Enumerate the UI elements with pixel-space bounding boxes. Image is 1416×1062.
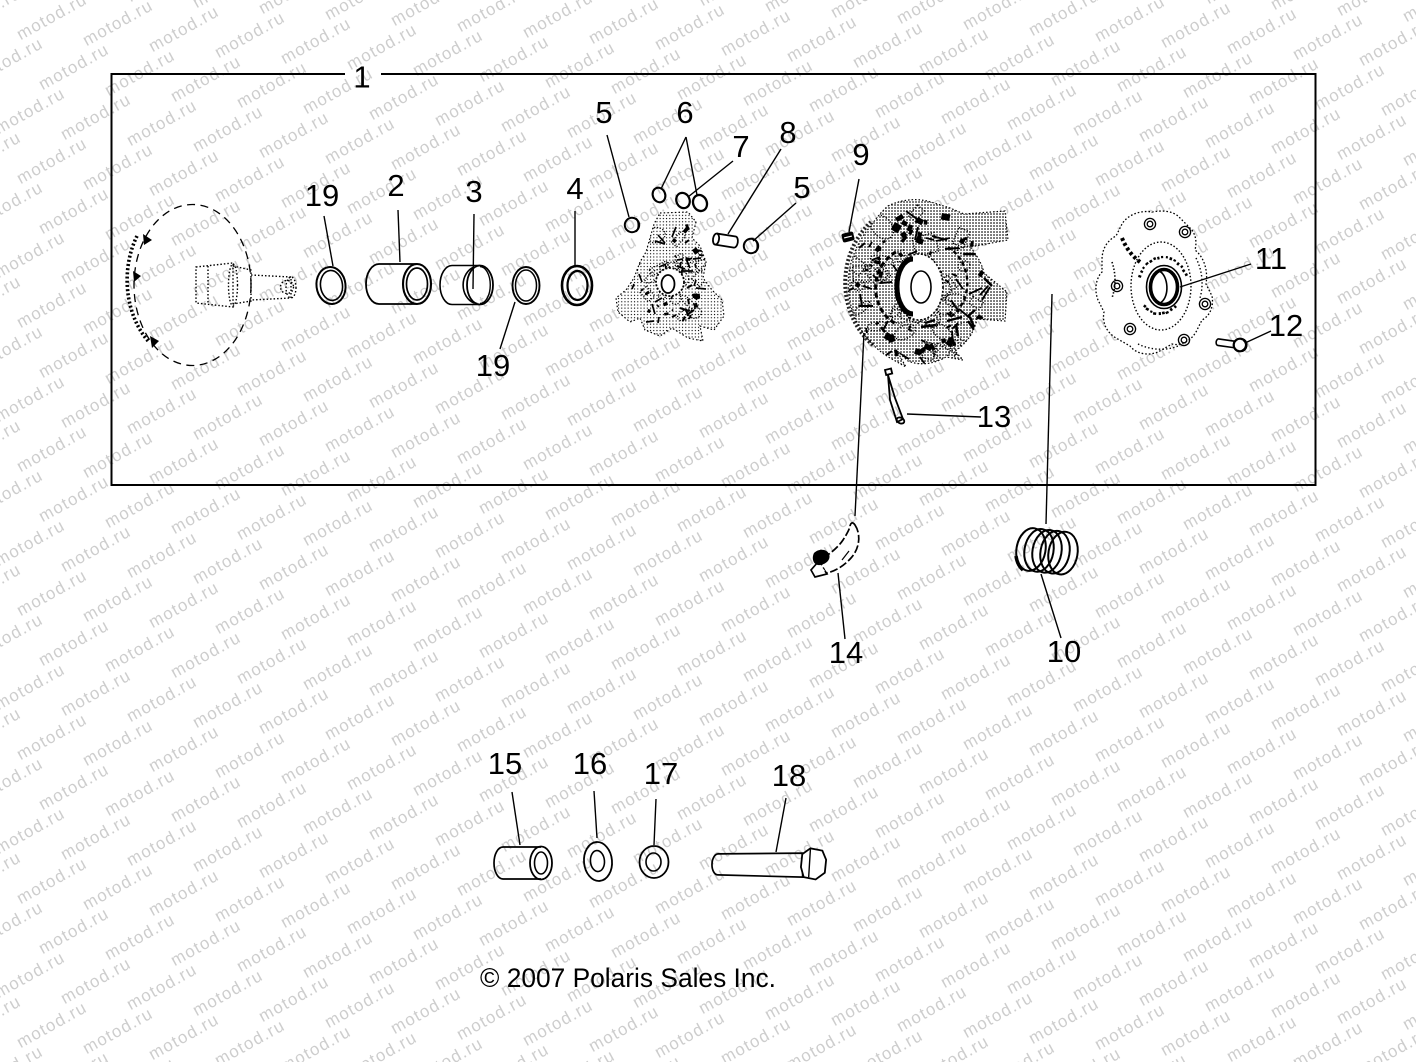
svg-text:17: 17 bbox=[644, 756, 678, 791]
svg-text:19: 19 bbox=[305, 178, 339, 213]
svg-text:15: 15 bbox=[488, 746, 522, 781]
svg-text:© 2007 Polaris Sales Inc.: © 2007 Polaris Sales Inc. bbox=[480, 963, 776, 993]
svg-text:1: 1 bbox=[353, 60, 370, 95]
svg-text:6: 6 bbox=[676, 95, 693, 130]
svg-text:2: 2 bbox=[387, 168, 404, 203]
svg-text:10: 10 bbox=[1047, 634, 1081, 669]
svg-text:14: 14 bbox=[829, 635, 863, 670]
svg-text:9: 9 bbox=[852, 137, 869, 172]
svg-text:8: 8 bbox=[779, 115, 796, 150]
svg-text:11: 11 bbox=[1255, 241, 1287, 276]
svg-text:3: 3 bbox=[465, 174, 482, 209]
svg-text:4: 4 bbox=[566, 171, 583, 206]
svg-text:5: 5 bbox=[595, 95, 612, 130]
svg-text:16: 16 bbox=[573, 746, 607, 781]
svg-text:7: 7 bbox=[732, 129, 749, 164]
svg-text:13: 13 bbox=[977, 399, 1011, 434]
svg-text:5: 5 bbox=[793, 170, 810, 205]
svg-text:19: 19 bbox=[476, 348, 510, 383]
svg-text:12: 12 bbox=[1269, 308, 1303, 343]
svg-text:18: 18 bbox=[772, 758, 806, 793]
